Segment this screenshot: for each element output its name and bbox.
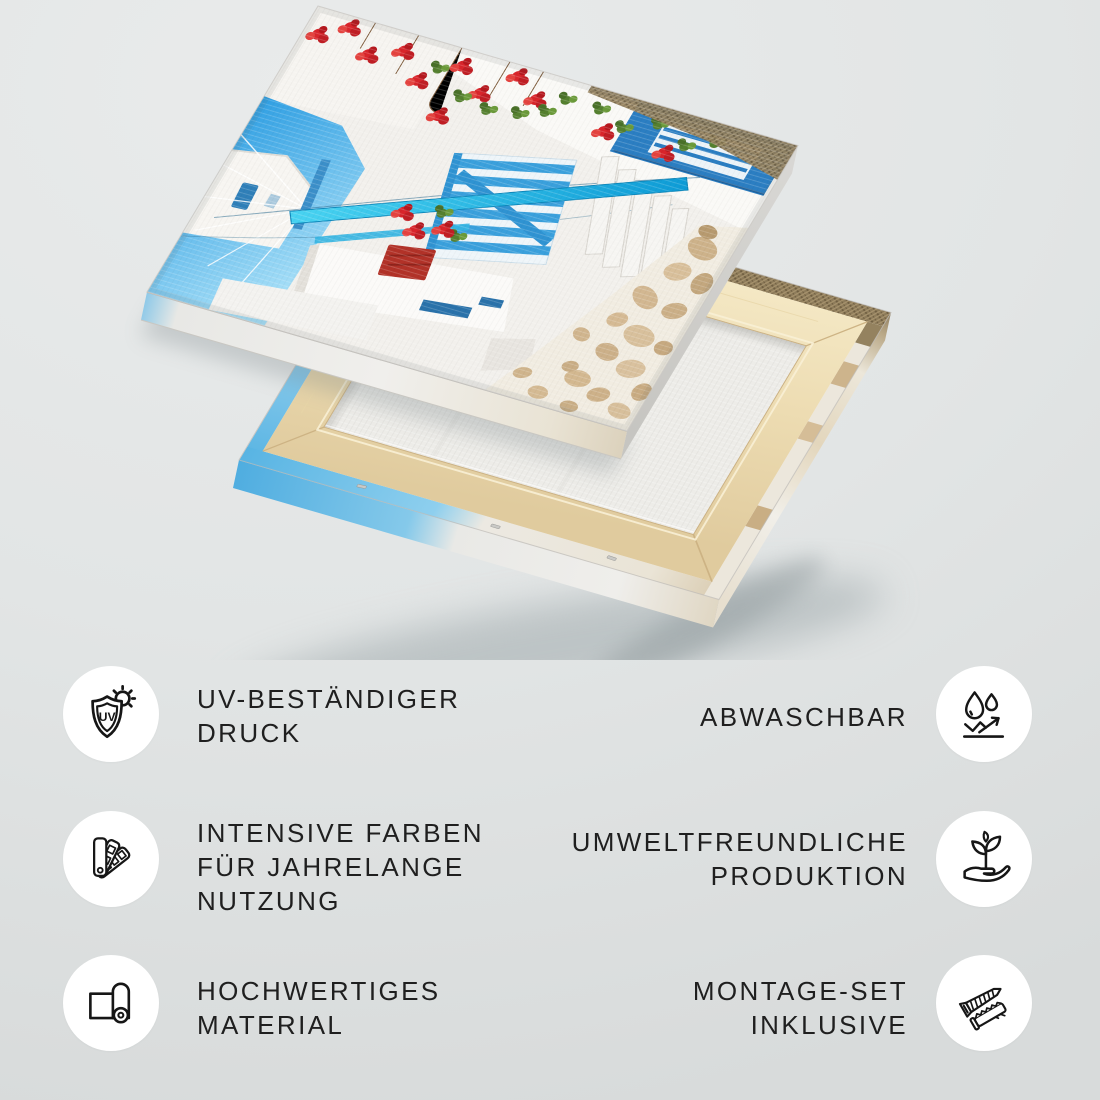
feature-text: ABWASCHBAR [700, 700, 908, 734]
eco-production-icon [953, 828, 1015, 890]
uv-icon-label: UV [99, 710, 116, 724]
feature-icon-circle: UV [63, 666, 159, 762]
feature-text: UV-BESTÄNDIGER DRUCK [197, 682, 460, 750]
feature-line: INKLUSIVE [693, 1008, 908, 1042]
feature-text: INTENSIVE FARBEN FÜR JAHRELANGE NUTZUNG [197, 816, 484, 918]
feature-icon-circle [63, 955, 159, 1051]
feature-text: UMWELTFREUNDLICHE PRODUKTION [572, 825, 908, 893]
feature-line: UMWELTFREUNDLICHE [572, 825, 908, 859]
product-infographic: UV UV-BESTÄNDIGER DRUCK ABWASCHBAR [0, 0, 1100, 1100]
feature-line: HOCHWERTIGES [197, 974, 441, 1008]
feature-line: MATERIAL [197, 1008, 441, 1042]
feature-line: NUTZUNG [197, 884, 484, 918]
color-fan-icon [81, 829, 141, 889]
feature-line: FÜR JAHRELANGE [197, 850, 484, 884]
feature-icon-circle [936, 955, 1032, 1051]
product-canvas-mockup [0, 0, 1100, 660]
uv-shield-icon: UV [80, 683, 142, 745]
feature-line: PRODUKTION [572, 859, 908, 893]
material-roll-icon [81, 973, 141, 1033]
feature-line: ABWASCHBAR [700, 700, 908, 734]
feature-text: MONTAGE-SET INKLUSIVE [693, 974, 908, 1042]
feature-icon-circle [936, 666, 1032, 762]
feature-line: MONTAGE-SET [693, 974, 908, 1008]
feature-line: UV-BESTÄNDIGER [197, 682, 460, 716]
feature-line: INTENSIVE FARBEN [197, 816, 484, 850]
washable-icon [954, 684, 1014, 744]
feature-text: HOCHWERTIGES MATERIAL [197, 974, 441, 1042]
feature-icon-circle [63, 811, 159, 907]
mounting-set-icon [953, 972, 1015, 1034]
feature-icon-circle [936, 811, 1032, 907]
feature-line: DRUCK [197, 716, 460, 750]
